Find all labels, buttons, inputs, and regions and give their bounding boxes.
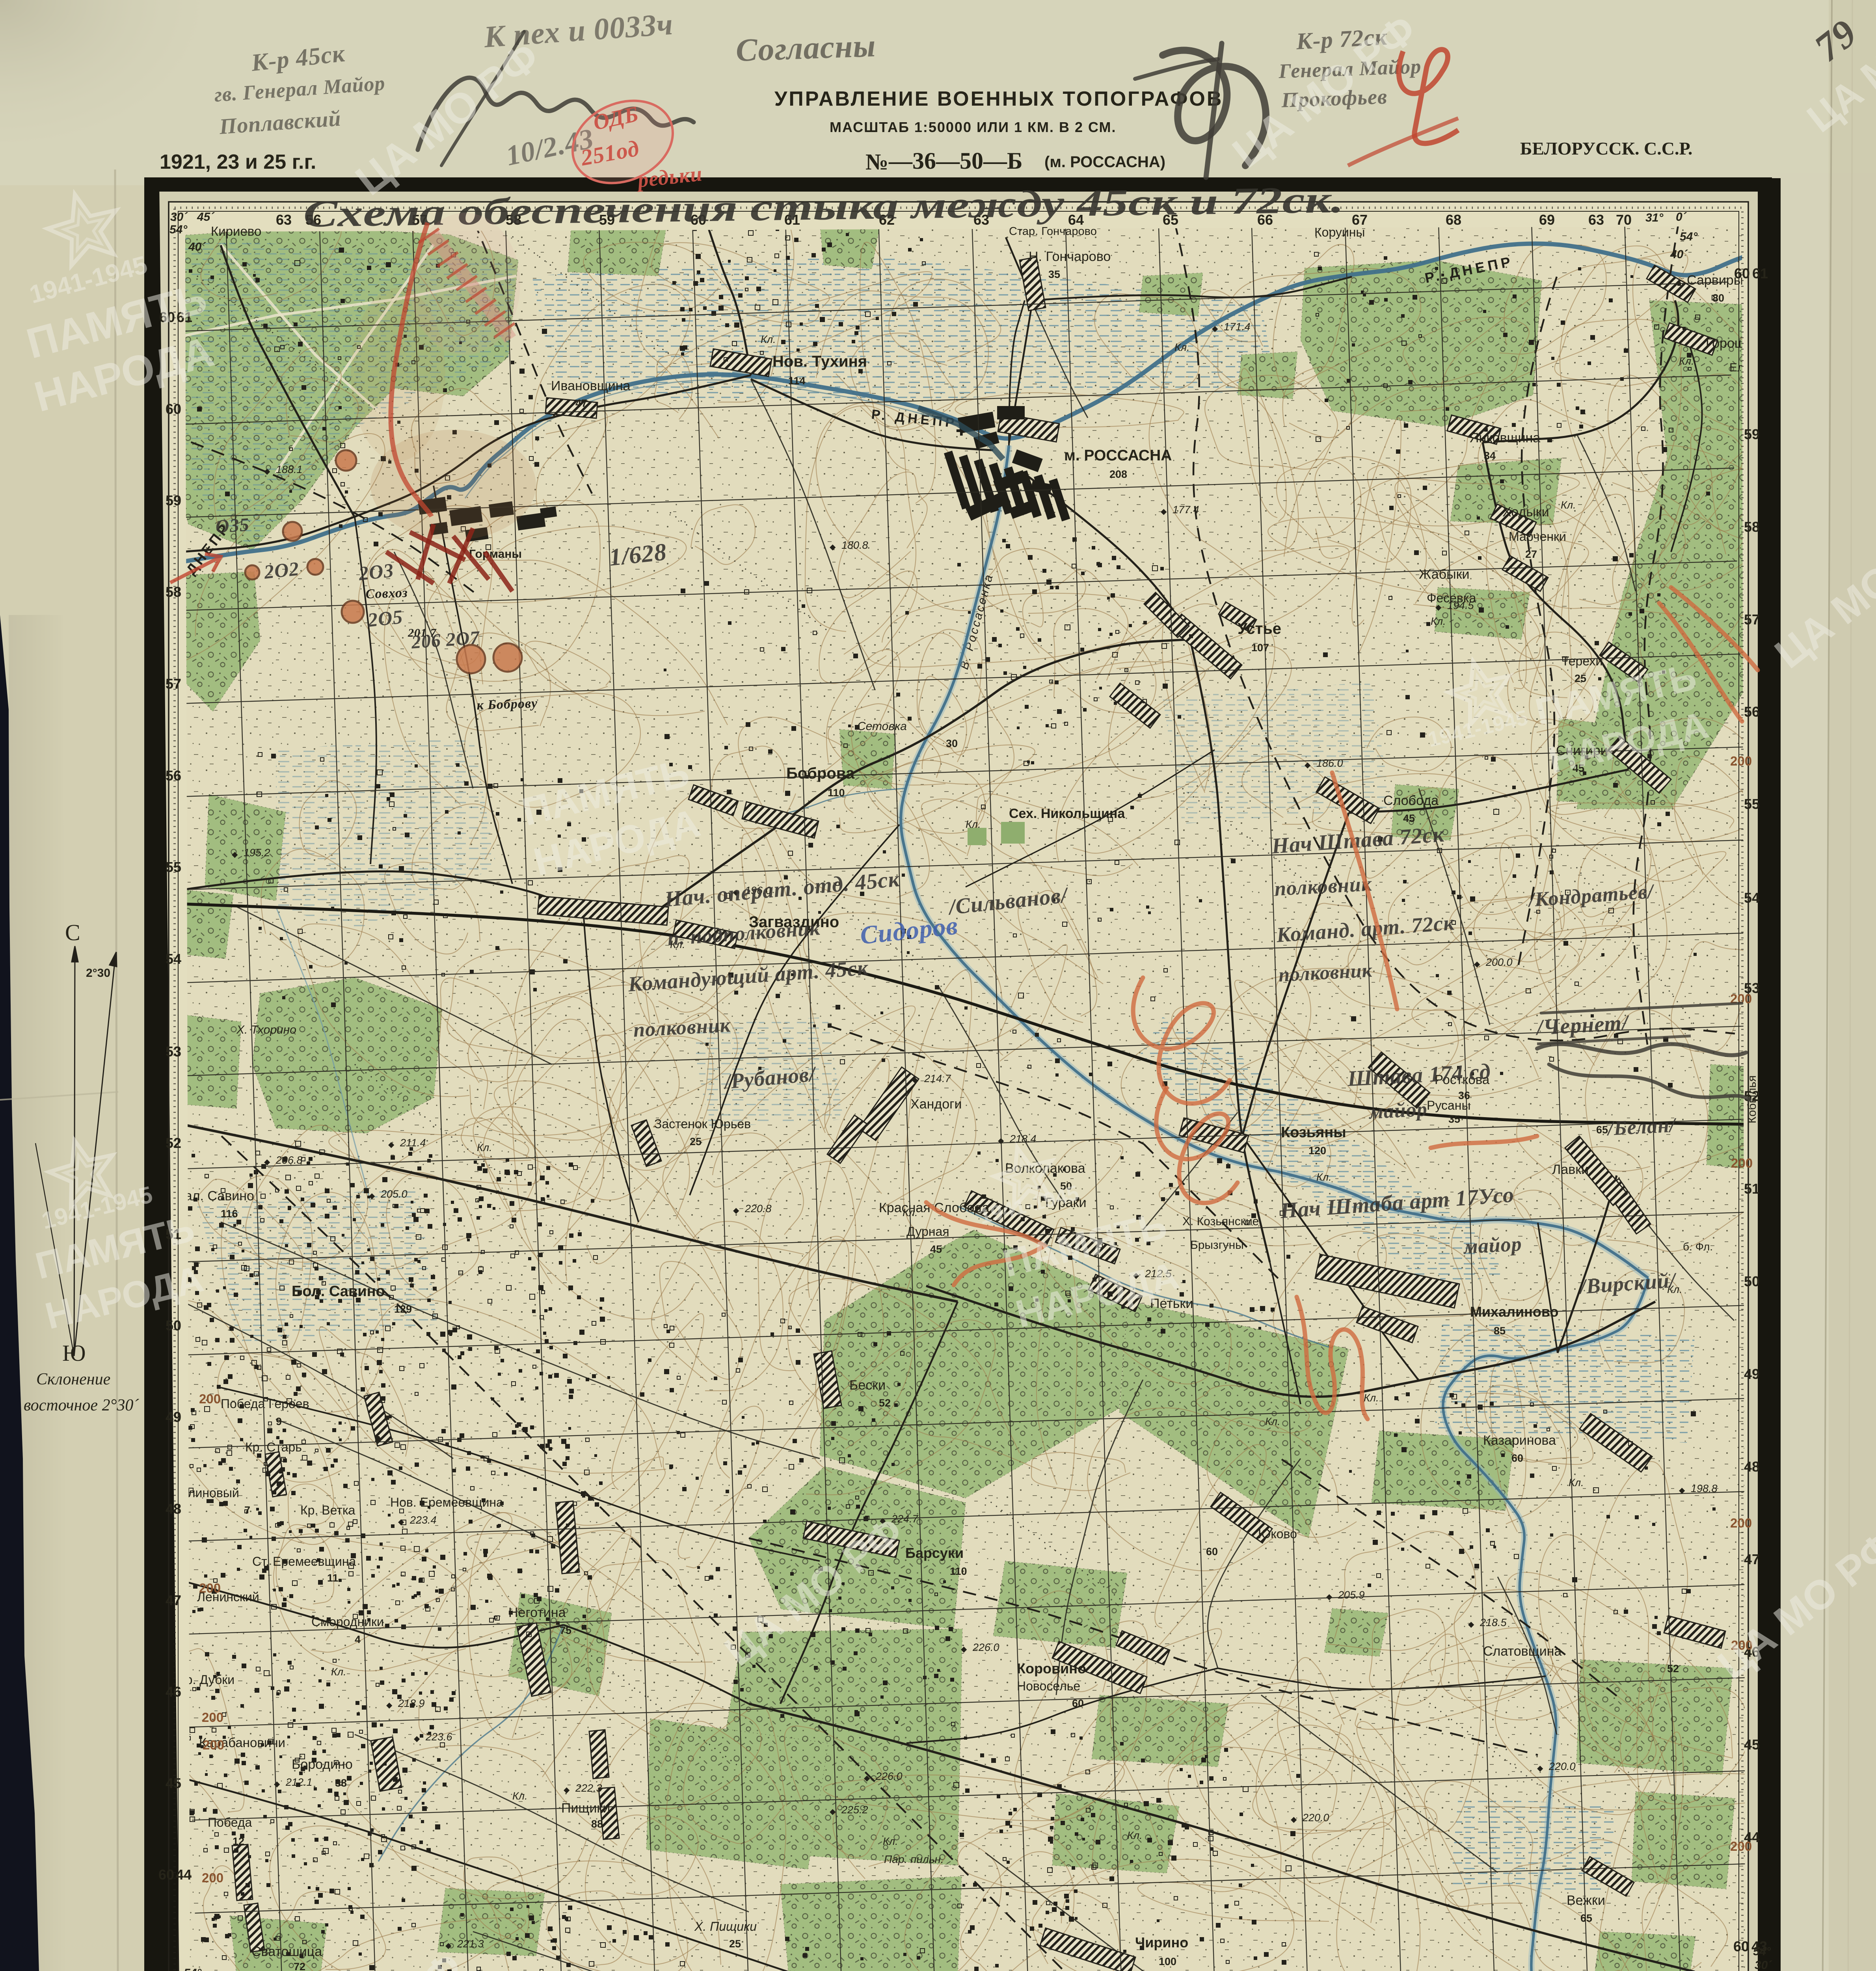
svg-text:Кл.: Кл. [512,1790,528,1802]
svg-text:Смородники: Смородники [311,1615,384,1629]
svg-text:60: 60 [1511,1452,1523,1464]
svg-text:◆: ◆ [912,1076,919,1085]
svg-text:205.0: 205.0 [380,1188,408,1200]
svg-text:Кл.: Кл. [477,1142,492,1153]
svg-text:30´: 30´ [170,211,188,224]
svg-text:Ходыки: Ходыки [1502,505,1549,520]
svg-text:116: 116 [221,1208,238,1220]
svg-text:120: 120 [1308,1145,1326,1157]
svg-text:100: 100 [1159,1956,1176,1967]
svg-text:25: 25 [690,1136,702,1148]
svg-text:майор: майор [1368,1098,1428,1123]
svg-text:Кл.: Кл. [1127,1829,1143,1841]
svg-text:61: 61 [1752,265,1768,281]
svg-text:Янковщина: Янковщина [1469,430,1540,445]
svg-text:226.0: 226.0 [875,1770,903,1782]
svg-text:214.7: 214.7 [924,1073,951,1084]
svg-text:45: 45 [166,1775,181,1791]
svg-text:65: 65 [1596,1124,1608,1136]
svg-text:200: 200 [1730,1839,1752,1854]
svg-text:Марченки: Марченки [1509,529,1566,544]
svg-text:59: 59 [166,492,181,509]
svg-text:2O2: 2O2 [262,557,300,583]
svg-text:Неготина: Неготина [508,1605,566,1620]
svg-text:Сватошица: Сватошица [251,1944,322,1959]
svg-text:Ст. Еремеевщина: Ст. Еремеевщина [252,1554,356,1569]
svg-text:◆: ◆ [864,1774,870,1783]
svg-text:67: 67 [1352,212,1368,228]
svg-text:Кл.: Кл. [331,1666,346,1678]
svg-text:Бол. Савино: Бол. Савино [292,1283,385,1300]
svg-text:85: 85 [1494,1325,1506,1337]
svg-text:212.1: 212.1 [285,1776,313,1788]
svg-text:◆: ◆ [386,1701,393,1710]
svg-text:70: 70 [1616,212,1632,228]
svg-text:◆: ◆ [1474,960,1480,969]
svg-text:35: 35 [1448,1113,1460,1125]
svg-text:Кл.: Кл. [1364,1392,1379,1404]
svg-text:208: 208 [1109,468,1127,480]
svg-text:60: 60 [1734,265,1750,281]
svg-text:Кр. Старь: Кр. Старь [245,1440,302,1454]
svg-text:220.0: 220.0 [1548,1760,1576,1772]
svg-text:218.4: 218.4 [1009,1133,1037,1145]
svg-text:Новоселье: Новоселье [1017,1679,1080,1693]
svg-text:52: 52 [1667,1663,1679,1675]
svg-text:220.0: 220.0 [1302,1812,1329,1824]
svg-text:◆: ◆ [961,1645,967,1654]
svg-text:40´: 40´ [1670,248,1688,261]
svg-text:Застенок Юрьев: Застенок Юрьев [654,1117,751,1131]
svg-text:Слатовщина: Слатовщина [1483,1644,1561,1659]
svg-text:65: 65 [1580,1912,1592,1924]
svg-text:68: 68 [1446,212,1461,228]
svg-text:177.4: 177.4 [1172,504,1199,516]
svg-text:◆: ◆ [1161,507,1167,516]
svg-text:60: 60 [1733,1938,1749,1954]
svg-text:54°: 54° [169,223,188,236]
svg-text:107: 107 [1251,642,1269,654]
svg-text:◆: ◆ [564,1786,570,1794]
svg-text:◆: ◆ [830,543,836,551]
svg-text:226.0: 226.0 [972,1641,999,1653]
svg-text:◆: ◆ [264,467,270,476]
svg-text:110: 110 [950,1565,967,1577]
svg-text:◆: ◆ [1291,1815,1297,1824]
svg-text:Ивановщина: Ивановщина [551,378,631,393]
svg-text:2°30: 2°30 [86,967,110,980]
svg-text:44: 44 [176,1867,192,1883]
svg-text:218.9: 218.9 [398,1697,425,1709]
svg-text:◆: ◆ [1326,1593,1333,1601]
svg-text:Лавки: Лавки [1552,1162,1589,1177]
svg-text:12: 12 [233,1835,244,1847]
svg-text:200: 200 [199,1581,221,1595]
svg-text:54: 54 [166,951,181,967]
svg-text:0´: 0´ [1676,211,1687,224]
svg-text:—36—50—Б: —36—50—Б [888,148,1023,174]
svg-text:/Белан/: /Белан/ [1606,1114,1678,1140]
svg-text:200: 200 [1731,1156,1753,1170]
svg-text:57: 57 [166,676,181,692]
svg-text:45: 45 [930,1243,942,1255]
svg-text:52: 52 [166,1135,181,1151]
svg-text:200: 200 [1730,754,1752,768]
svg-text:Слобода: Слобода [1383,793,1439,808]
svg-text:Кл.: Кл. [883,1835,898,1847]
svg-text:60: 60 [166,401,181,417]
svg-text:35: 35 [1048,268,1060,280]
svg-text:Боброва: Боброва [786,765,855,782]
svg-text:◆: ◆ [1435,603,1442,612]
svg-text:59: 59 [1744,426,1760,442]
svg-text:60: 60 [158,1867,174,1883]
svg-text:110: 110 [828,787,845,799]
svg-text:б. Фл.: б. Фл. [1683,1241,1713,1253]
svg-text:Кл.: Кл. [1174,341,1190,353]
svg-text:43: 43 [1751,1938,1767,1954]
svg-text:Хандоги: Хандоги [910,1097,962,1112]
svg-text:Ю: Ю [62,1340,86,1366]
svg-text:200: 200 [202,1710,223,1725]
svg-text:55: 55 [166,859,181,875]
svg-text:Кл.: Кл. [1431,615,1446,627]
svg-text:Кр. Ветка: Кр. Ветка [300,1503,355,1517]
svg-text:49: 49 [166,1409,181,1425]
svg-text:№: № [865,149,888,175]
svg-text:O35: O35 [215,514,250,537]
svg-text:Нов. Еремеевщина: Нов. Еремеевщина [390,1495,503,1509]
svg-text:1921, 23 и 25 г.г.: 1921, 23 и 25 г.г. [160,151,316,173]
svg-text:55: 55 [1744,796,1760,812]
svg-text:Дурная: Дурная [906,1224,949,1239]
svg-text:31°: 31° [1645,211,1664,224]
svg-text:200.0: 200.0 [1485,956,1513,968]
svg-text:47: 47 [1744,1551,1760,1567]
svg-text:50: 50 [166,1317,181,1334]
svg-text:47: 47 [166,1592,181,1608]
svg-text:◆: ◆ [830,1807,836,1816]
svg-text:МАСШТАБ 1:50000 ИЛИ 1 КМ. В 2: МАСШТАБ 1:50000 ИЛИ 1 КМ. В 2 СМ. [830,119,1117,135]
svg-text:9: 9 [276,1416,282,1427]
svg-text:48: 48 [166,1501,181,1517]
svg-text:69: 69 [1539,212,1555,228]
svg-text:◆: ◆ [232,850,238,859]
svg-text:45´: 45´ [197,211,215,224]
svg-text:◆: ◆ [398,1518,404,1526]
svg-text:88: 88 [591,1818,603,1830]
svg-text:Терехи: Терехи [1561,654,1602,668]
svg-text:Устье: Устье [1238,620,1281,637]
svg-text:63: 63 [276,212,292,228]
svg-text:БЕЛОРУССК. С.С.Р.: БЕЛОРУССК. С.С.Р. [1520,138,1692,158]
svg-text:Победа: Победа [208,1815,252,1829]
svg-text:Юково: Юково [1258,1527,1297,1541]
svg-text:38: 38 [335,1777,347,1789]
svg-text:200: 200 [1730,1516,1752,1530]
svg-text:◆: ◆ [414,1734,420,1743]
svg-text:Победа Героев: Победа Героев [221,1397,309,1411]
svg-text:45: 45 [1744,1736,1760,1753]
svg-text:56: 56 [1744,704,1760,720]
svg-text:200: 200 [199,1392,221,1406]
svg-text:◆: ◆ [274,1780,280,1788]
svg-text:188.1: 188.1 [276,464,303,475]
svg-text:30: 30 [946,738,958,749]
svg-text:◆: ◆ [264,1158,270,1166]
svg-text:Бески: Бески [849,1378,886,1393]
svg-text:223.4: 223.4 [409,1514,437,1526]
svg-text:48: 48 [1744,1459,1760,1475]
svg-text:11: 11 [327,1572,339,1584]
svg-text:46: 46 [166,1684,181,1700]
svg-text:54°: 54° [184,1967,202,1971]
svg-text:2O5: 2O5 [366,605,404,631]
svg-text:Чирино: Чирино [1135,1934,1188,1951]
svg-text:Нов. Тухиня: Нов. Тухиня [772,353,867,370]
svg-text:218.5: 218.5 [1480,1617,1507,1628]
svg-text:Кл.: Кл. [1265,1416,1280,1427]
svg-text:211.4: 211.4 [400,1137,426,1149]
svg-text:56: 56 [166,768,181,784]
svg-text:Кириево: Кириево [211,224,261,238]
svg-text:51: 51 [1744,1181,1760,1197]
svg-text:м. РОССАСНА: м. РОССАСНА [1064,447,1172,464]
svg-text:к Боброву: к Боброву [476,696,538,713]
svg-text:Кл.: Кл. [1561,499,1576,511]
svg-text:171.4: 171.4 [1224,321,1251,333]
svg-text:майор: майор [1463,1233,1522,1258]
svg-text:7: 7 [244,1504,250,1516]
svg-text:129: 129 [394,1303,412,1315]
svg-text:200: 200 [202,1870,223,1885]
svg-text:30´: 30´ [1755,1959,1772,1971]
svg-text:34: 34 [1484,450,1496,462]
svg-text:58: 58 [166,584,181,600]
svg-text:◆: ◆ [369,1192,375,1200]
svg-text:УПРАВЛЕНИЕ ВОЕННЫХ ТОПОГРАФО: УПРАВЛЕНИЕ ВОЕННЫХ ТОПОГРАФОВ [774,88,1223,110]
svg-text:60: 60 [1206,1546,1218,1557]
svg-text:Казаринова: Казаринова [1483,1433,1556,1448]
svg-text:Брызгуны: Брызгуны [1190,1239,1244,1252]
svg-text:◆: ◆ [733,1206,739,1215]
svg-text:Жабыки: Жабыки [1419,567,1469,582]
svg-text:Пар. пильн.: Пар. пильн. [884,1853,944,1865]
svg-text:Х. Козьянские: Х. Козьянские [1182,1215,1259,1228]
svg-text:Кл.: Кл. [1679,355,1694,367]
svg-text:Барсуки: Барсуки [905,1545,964,1561]
svg-text:54: 54 [1744,890,1760,906]
svg-text:/Чернет/: /Чернет/ [1534,1011,1630,1040]
svg-text:◆: ◆ [1468,1620,1474,1629]
svg-text:4: 4 [355,1634,361,1645]
svg-text:Бородино: Бородино [292,1757,353,1772]
svg-text:222.3: 222.3 [575,1782,602,1794]
svg-text:Х. Тхорино: Х. Тхорино [236,1023,296,1036]
svg-text:◆: ◆ [1305,761,1311,769]
svg-text:72: 72 [294,1961,305,1971]
svg-text:57: 57 [1744,611,1760,628]
svg-text:С: С [65,920,80,945]
svg-text:200: 200 [203,1738,224,1752]
svg-text:2O3: 2O3 [357,559,395,585]
svg-text:◆: ◆ [1537,1764,1543,1773]
svg-text:186.0: 186.0 [1316,757,1343,769]
svg-text:Сетовка: Сетовка [857,720,907,733]
svg-text:(м. РОССАСНА): (м. РОССАСНА) [1044,153,1165,171]
svg-text:54°: 54° [1680,230,1698,243]
svg-text:Коровино: Коровино [1017,1660,1086,1677]
svg-text:27: 27 [1525,548,1537,560]
svg-text:36: 36 [1458,1090,1470,1101]
svg-text:40´: 40´ [188,240,206,253]
svg-text:Склонение: Склонение [36,1370,110,1388]
svg-text:53: 53 [166,1043,181,1060]
svg-text:Н. Гончарово: Н. Гончарово [1029,249,1111,264]
svg-text:52: 52 [879,1397,891,1409]
svg-text:Кл.: Кл. [761,333,776,345]
svg-text:Совхоз: Совхоз [365,585,408,602]
svg-text:47: 47 [575,397,587,409]
svg-text:Х. Пищики: Х. Пищики [694,1919,757,1934]
svg-text:Сех. Никольщина: Сех. Никольщина [1009,806,1125,821]
svg-text:221.3: 221.3 [457,1938,484,1950]
svg-text:180.8: 180.8 [841,539,868,551]
svg-text:49: 49 [1744,1366,1760,1382]
svg-text:45: 45 [1403,812,1415,824]
svg-text:58: 58 [1744,519,1760,535]
svg-text:75: 75 [560,1624,571,1636]
svg-text:195.2: 195.2 [244,847,270,859]
svg-text:Горманы: Горманы [469,548,522,561]
svg-text:Кл.: Кл. [966,818,981,830]
svg-text:63: 63 [1588,212,1604,228]
svg-text:Кл.: Кл. [1569,1477,1584,1488]
svg-text:25: 25 [729,1938,741,1950]
svg-text:223.6: 223.6 [425,1731,453,1743]
svg-text:Кл.: Кл. [1316,1171,1332,1183]
svg-text:206.8: 206.8 [275,1154,303,1166]
svg-text:Согласны: Согласны [735,28,876,68]
svg-text:◆: ◆ [388,1140,395,1149]
svg-text:50: 50 [1744,1273,1760,1289]
svg-text:Вежки: Вежки [1567,1893,1605,1908]
svg-text:80: 80 [1712,292,1724,304]
svg-text:◆: ◆ [1212,324,1218,333]
svg-text:205.9: 205.9 [1338,1589,1365,1601]
svg-text:восточное 2°30´: восточное 2°30´ [24,1396,139,1414]
svg-text:225.2: 225.2 [841,1804,868,1816]
svg-text:220.8: 220.8 [744,1203,772,1215]
